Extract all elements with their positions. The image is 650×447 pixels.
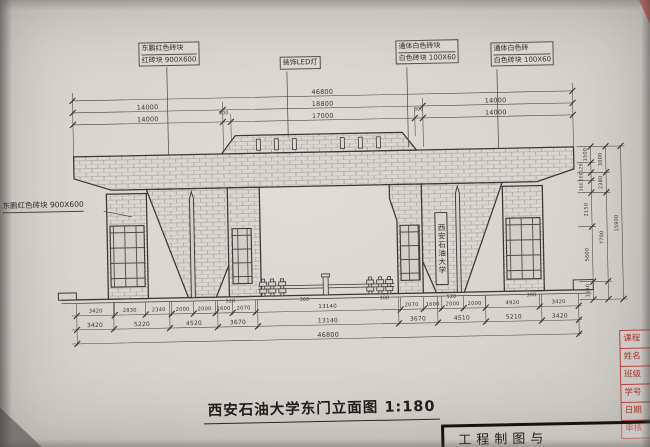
right-column-panel <box>400 225 420 280</box>
gate-elevation-drawing <box>0 0 650 447</box>
left-wall-panel <box>110 226 145 288</box>
name-plaque <box>435 212 448 284</box>
photographed-blueprint: 东鹏红色砖块 红砖块 900X600 装饰LED灯 通体白色砖块 白色砖块 10… <box>0 0 650 447</box>
dimension-ticks <box>69 87 627 347</box>
dimension-lines <box>67 82 628 346</box>
center-fence <box>258 273 394 297</box>
right-wall-panel <box>506 218 541 280</box>
left-column-panel <box>232 228 252 283</box>
top-parapet <box>221 132 416 154</box>
drawing-layer: 东鹏红色砖块 红砖块 900X600 装饰LED灯 通体白色砖块 白色砖块 10… <box>0 0 650 447</box>
